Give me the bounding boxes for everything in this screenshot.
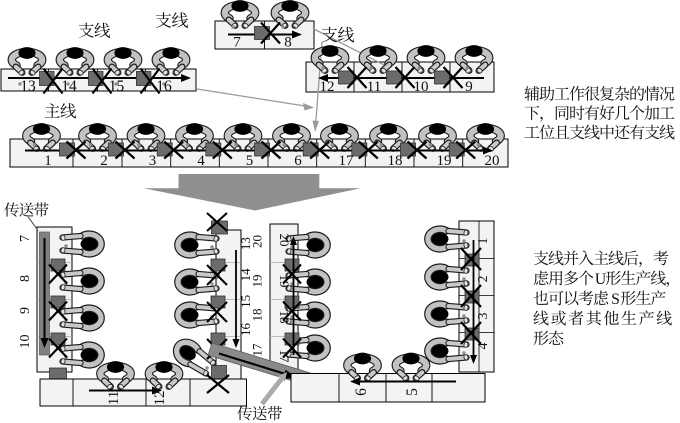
- svg-text:2: 2: [475, 276, 490, 283]
- svg-text:4: 4: [475, 342, 490, 349]
- svg-text:5: 5: [404, 388, 421, 396]
- svg-text:1: 1: [475, 238, 490, 245]
- svg-text:19: 19: [250, 275, 265, 288]
- svg-text:8: 8: [18, 275, 33, 282]
- svg-text:3: 3: [149, 153, 157, 169]
- svg-text:19: 19: [437, 153, 452, 169]
- svg-text:10: 10: [414, 79, 429, 95]
- svg-text:7: 7: [233, 35, 241, 51]
- svg-text:17: 17: [277, 350, 292, 364]
- svg-text:S: S: [611, 291, 620, 308]
- svg-text:9: 9: [18, 307, 33, 314]
- svg-text:5: 5: [246, 153, 254, 169]
- svg-text:6: 6: [294, 153, 302, 169]
- svg-text:2: 2: [100, 153, 108, 169]
- svg-text:11: 11: [106, 391, 122, 405]
- svg-text:17: 17: [339, 153, 355, 169]
- svg-text:10: 10: [18, 335, 33, 349]
- svg-text:20: 20: [250, 235, 265, 248]
- svg-text:20: 20: [485, 153, 500, 169]
- svg-text:1: 1: [44, 153, 52, 169]
- svg-text:7: 7: [18, 235, 33, 242]
- svg-text:12: 12: [152, 391, 168, 406]
- svg-text:3: 3: [475, 312, 490, 319]
- svg-text:9: 9: [465, 79, 473, 95]
- svg-text:18: 18: [277, 311, 292, 324]
- svg-text:16: 16: [238, 323, 253, 337]
- svg-text:11: 11: [367, 79, 381, 95]
- svg-text:15: 15: [238, 295, 253, 308]
- svg-text:8: 8: [284, 35, 292, 51]
- svg-text:17: 17: [250, 343, 265, 357]
- svg-text:18: 18: [250, 309, 265, 322]
- svg-text:13: 13: [20, 78, 36, 95]
- svg-text:20: 20: [277, 234, 292, 247]
- svg-text:16: 16: [156, 78, 172, 95]
- svg-text:18: 18: [388, 153, 403, 169]
- svg-text:15: 15: [109, 78, 125, 95]
- svg-text:19: 19: [277, 275, 292, 288]
- svg-text:12: 12: [320, 79, 335, 95]
- svg-text:U: U: [595, 271, 606, 288]
- svg-text:14: 14: [61, 78, 77, 95]
- svg-text:4: 4: [197, 153, 205, 169]
- svg-text:6: 6: [353, 388, 370, 396]
